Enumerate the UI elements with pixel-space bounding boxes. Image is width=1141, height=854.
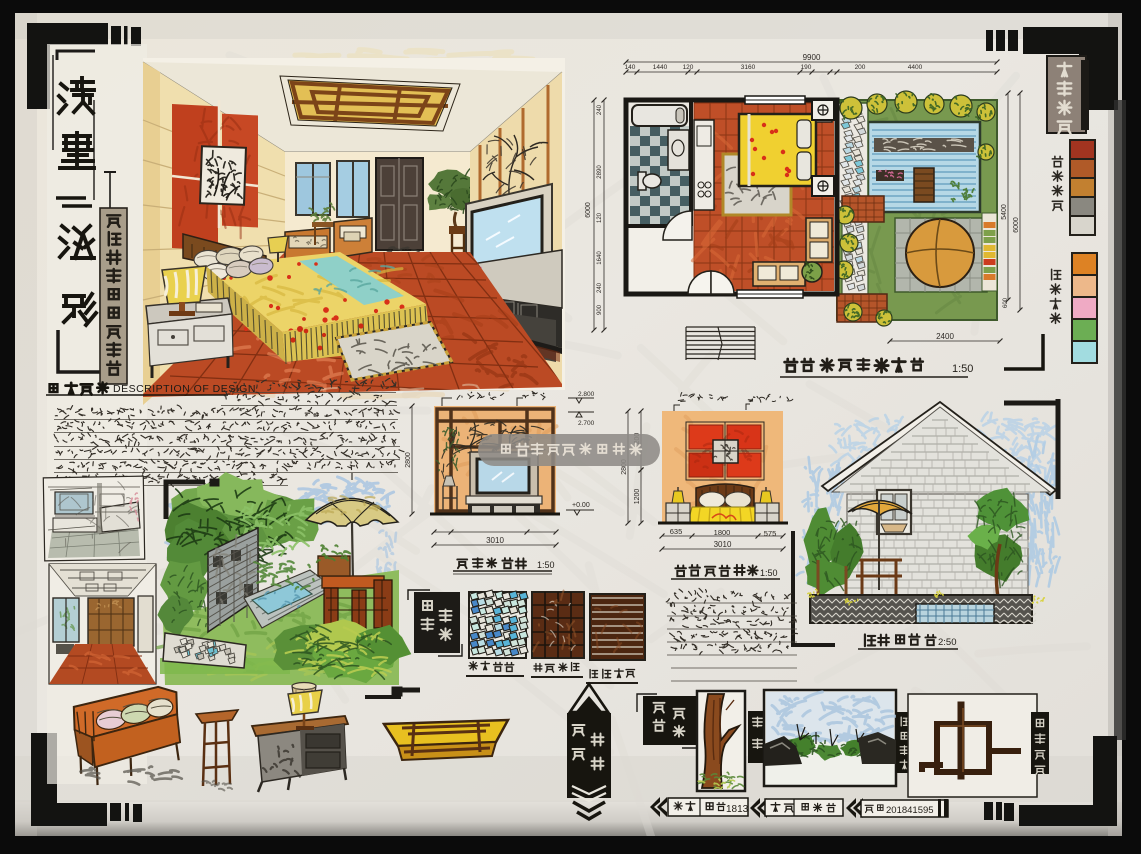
svg-text:201841595: 201841595 [886,805,934,816]
svg-text:+0.00: +0.00 [572,502,590,509]
svg-text:900: 900 [597,304,603,315]
svg-text:240: 240 [597,104,603,115]
svg-text:2.800: 2.800 [578,391,595,398]
svg-text:2.700: 2.700 [578,420,595,427]
svg-text:1:50: 1:50 [760,568,778,578]
svg-text:1200: 1200 [634,489,641,505]
svg-text:240: 240 [597,282,603,293]
svg-text:120: 120 [597,212,603,223]
svg-text:2890: 2890 [597,165,603,179]
svg-text:1800: 1800 [714,528,731,537]
svg-text:6000: 6000 [1013,217,1020,233]
svg-text:120: 120 [683,64,694,71]
svg-text:1813: 1813 [726,804,749,815]
svg-text:635: 635 [670,527,683,536]
svg-text:600: 600 [1003,297,1009,308]
svg-text:2800: 2800 [405,452,412,468]
svg-text:1440: 1440 [653,64,668,71]
svg-text:1:50: 1:50 [952,363,973,375]
svg-text:1:50: 1:50 [537,560,555,570]
svg-text:6000: 6000 [585,202,592,218]
svg-text:3010: 3010 [486,536,504,545]
svg-text:200: 200 [855,64,866,71]
svg-text:3010: 3010 [714,540,732,549]
svg-text:2:50: 2:50 [938,637,957,648]
svg-text:3160: 3160 [741,64,756,71]
svg-text:5400: 5400 [1001,204,1008,220]
svg-text:575: 575 [764,529,777,538]
svg-text:140: 140 [625,64,636,71]
svg-text:4400: 4400 [908,64,923,71]
svg-text:190: 190 [801,64,812,71]
svg-text:9900: 9900 [803,53,821,62]
svg-text:DESCRIPTION OF DESIGN: DESCRIPTION OF DESIGN [113,383,256,395]
svg-text:2400: 2400 [936,332,954,341]
svg-text:1640: 1640 [597,251,603,265]
